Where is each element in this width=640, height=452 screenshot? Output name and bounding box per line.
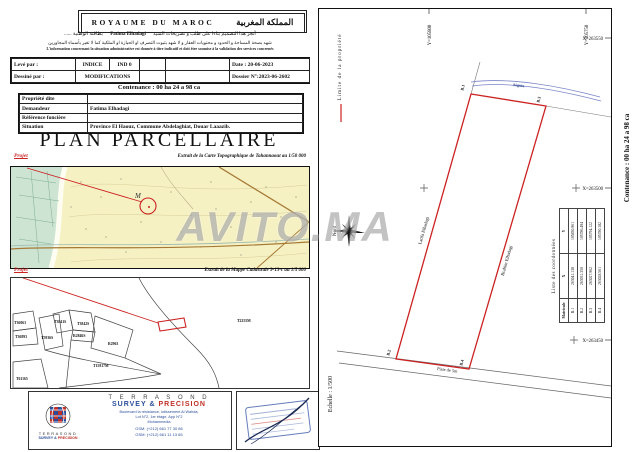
coords-row: B.3 263027.962 105794.122 xyxy=(587,209,596,323)
parcel-label: T3841S xyxy=(54,320,66,324)
modifications-label: MODIFICATIONS xyxy=(76,71,140,83)
parcel-label: T2255M xyxy=(237,319,251,323)
kingdom-header-inner: ROYAUME DU MAROC المملكة المغربية xyxy=(81,13,305,33)
coordinates-table: Matricule X Y B.1 263041.138 105830.961 … xyxy=(559,208,605,323)
corner-label-b1: B.1 xyxy=(459,84,465,91)
parcel-label: T5936S xyxy=(41,336,53,340)
grid-x-label-1: X=263550 xyxy=(582,37,603,42)
indice-label: INDICE xyxy=(76,59,110,71)
attestation-line2: شهد بصحة المساحة و الحدود و محتويات العق… xyxy=(12,39,308,46)
attestation-line1-pre: أنجز هذا التصميم بناءا على طلب و تصريحات… xyxy=(153,32,256,37)
address-line2: Lot N°2, 1er étage, App N°2 xyxy=(136,415,183,419)
cadastre-caption: Extrait de la Mappe Cadastrale 9-13-c au… xyxy=(204,268,306,273)
topo-caption-row: Projet Extrait de la Carte Topographique… xyxy=(14,153,306,159)
seguia-label: Séguia xyxy=(513,82,525,88)
propriete-dite-label: Propriété dite xyxy=(20,95,88,104)
parcel-label: T36893 xyxy=(15,335,27,339)
parcel-label: T3842S xyxy=(77,322,89,326)
corner-label-b2: B.2 xyxy=(385,349,391,356)
north-star-icon: Nord xyxy=(333,215,365,247)
dessine-par-label: Dessiné par : xyxy=(12,71,76,83)
applicant-name: Fatima Elhadagi xyxy=(104,32,152,37)
page-title: PLAN PARCELLAIRE xyxy=(10,129,308,152)
coords-header-row: Matricule X Y xyxy=(560,209,569,323)
legend-limite: Limite de la propriété xyxy=(337,33,343,122)
table-row: Propriété dite xyxy=(20,95,303,104)
parcel-label: R2963 xyxy=(108,342,118,346)
cadastral-map-extract: T36063 T36893 T3841S T3842S T5936S R2846… xyxy=(10,277,310,389)
propriete-dite-value xyxy=(88,95,303,104)
coordinates-table-rotated: Liste des coordonnées Matricule X Y B.1 … xyxy=(552,207,604,325)
cadastre-projet-label: Projet xyxy=(14,267,28,273)
topo-irrigated-zone xyxy=(11,167,65,268)
boundary-extension-lines xyxy=(471,62,611,117)
grid-x-label-3: X=263450 xyxy=(582,339,603,344)
side-contenance-area: Contenance : 00 ha 24 a 98 ca xyxy=(616,80,638,236)
info-table-row1: Levé par : INDICE IND 0 Date : 20-06-202… xyxy=(12,59,310,71)
company-phones: GSM: (+212) 661 77 30 86 GSM: (+212) 661… xyxy=(87,426,231,438)
cadastre-boundaries xyxy=(13,278,219,388)
topo-projet-label: Projet xyxy=(14,153,28,159)
coordinates-table-title: Liste des coordonnées xyxy=(552,207,559,325)
table-row: Référence foncière xyxy=(20,113,303,122)
parcel-label: T36063 xyxy=(14,321,26,325)
globe-logo-icon xyxy=(43,403,73,431)
property-table: Propriété dite Demandeur Fatima Elhadagi… xyxy=(18,93,304,134)
info-table: Levé par : INDICE IND 0 Date : 20-06-202… xyxy=(10,57,310,84)
demandeur-label: Demandeur xyxy=(20,104,88,113)
scanned-parcel-plan-document: ROYAUME DU MAROC المملكة المغربية أنجز ه… xyxy=(0,0,640,452)
property-parcel-outline xyxy=(396,94,546,369)
ind0-value: IND 0 xyxy=(110,59,140,71)
gsm-line1: GSM: (+212) 661 77 30 86 xyxy=(135,426,182,431)
legend-limite-label: Limite de la propriété xyxy=(337,33,343,100)
reference-fonciere-value xyxy=(88,113,303,122)
stamp-and-signature xyxy=(237,392,319,449)
reference-fonciere-label: Référence foncière xyxy=(20,113,88,122)
coordinates-table-area: Liste des coordonnées Matricule X Y B.1 … xyxy=(552,207,604,325)
cadastre-caption-row: Projet Extrait de la Mappe Cadastrale 9-… xyxy=(14,267,306,273)
parcel-label: T15817M xyxy=(93,364,109,368)
kingdom-title-ar: المملكة المغربية xyxy=(236,17,293,28)
parcel-label: T61165 xyxy=(16,377,28,381)
gsm-line2: GSM: (+212) 661 11 13 65 xyxy=(135,432,182,437)
grid-x-label-2: X=263500 xyxy=(582,187,603,192)
corner-label-b4: B.4 xyxy=(458,358,465,366)
kingdom-title-fr: ROYAUME DU MAROC xyxy=(92,18,215,27)
contenance-line: Contenance : 00 ha 24 a 98 ca xyxy=(10,84,308,91)
company-subtitle: SURVEY & PRECISION xyxy=(87,401,231,408)
neighbor-right-name: Brahim Elhadagi xyxy=(500,244,514,276)
neighbor-left-name: Latifa Elhadagi xyxy=(417,216,430,245)
scale-label: Echelle : 1/500 xyxy=(328,376,334,412)
leve-par-label: Levé par : xyxy=(12,59,76,71)
kingdom-header-box: ROYAUME DU MAROC المملكة المغربية xyxy=(78,10,307,33)
parcel-label: R2846S xyxy=(73,334,85,338)
cadastre-parcel-labels: T36063 T36893 T3841S T3842S T5936S R2846… xyxy=(14,319,251,381)
topographic-map-extract: M xyxy=(10,166,310,269)
attestation-block: أنجز هذا التصميم بناءا على طلب و تصريحات… xyxy=(12,31,308,53)
demandeur-value: Fatima Elhadagi xyxy=(88,104,303,113)
side-contenance-label: Contenance : 00 ha 24 a 98 ca xyxy=(616,80,638,236)
company-address: Boulevard la résistance, lotissement Al … xyxy=(87,410,231,425)
surveyor-company-box: TERRASOND SURVEY & PRECISION T E R R A S… xyxy=(28,391,232,450)
attestation-line1-post: بطاقته الوطنية ...... xyxy=(64,32,103,37)
company-logo-block: TERRASOND SURVEY & PRECISION xyxy=(29,392,87,449)
coords-row: B.2 263031.350 105786.494 xyxy=(578,209,587,323)
stamp-signature-box xyxy=(236,391,320,450)
attestation-line3: L'information concernant la situation ad… xyxy=(12,46,308,52)
coords-header-y: Y xyxy=(560,209,569,254)
logo-company-sub: SURVEY & PRECISION xyxy=(38,436,77,440)
address-line3: Mohammedia xyxy=(147,420,170,424)
coords-row: B.1 263041.138 105830.961 xyxy=(569,209,578,323)
topo-caption: Extrait de la Carte Topographique de Tah… xyxy=(178,154,306,159)
coords-header-x: X xyxy=(560,254,569,299)
table-row: Demandeur Fatima Elhadagi xyxy=(20,104,303,113)
dossier-value: Dossier N°:2023-06-2602 xyxy=(230,71,310,83)
attestation-line1: أنجز هذا التصميم بناءا على طلب و تصريحات… xyxy=(12,31,308,39)
info-table-row2: Dessiné par : MODIFICATIONS Dossier N°:2… xyxy=(12,71,310,83)
coords-header-matricule: Matricule xyxy=(560,299,569,323)
date-value: Date : 20-06-2023 xyxy=(230,59,310,71)
grid-y-label-1: Y=105800 xyxy=(428,24,433,45)
coords-row: B.4 263028.561 105780.182 xyxy=(596,209,605,323)
corner-label-b3: B.3 xyxy=(535,96,541,103)
grid-y-label-2: Y=105750 xyxy=(585,24,590,45)
cadastre-project-parcel xyxy=(23,278,186,331)
road-piste-lines xyxy=(337,351,611,398)
north-label: Nord xyxy=(333,225,338,236)
topo-marker-m-label: M xyxy=(134,192,142,200)
address-line1: Boulevard la résistance, lotissement Al … xyxy=(119,410,198,414)
company-info-block: T E R R A S O N D SURVEY & PRECISION Bou… xyxy=(87,392,231,449)
